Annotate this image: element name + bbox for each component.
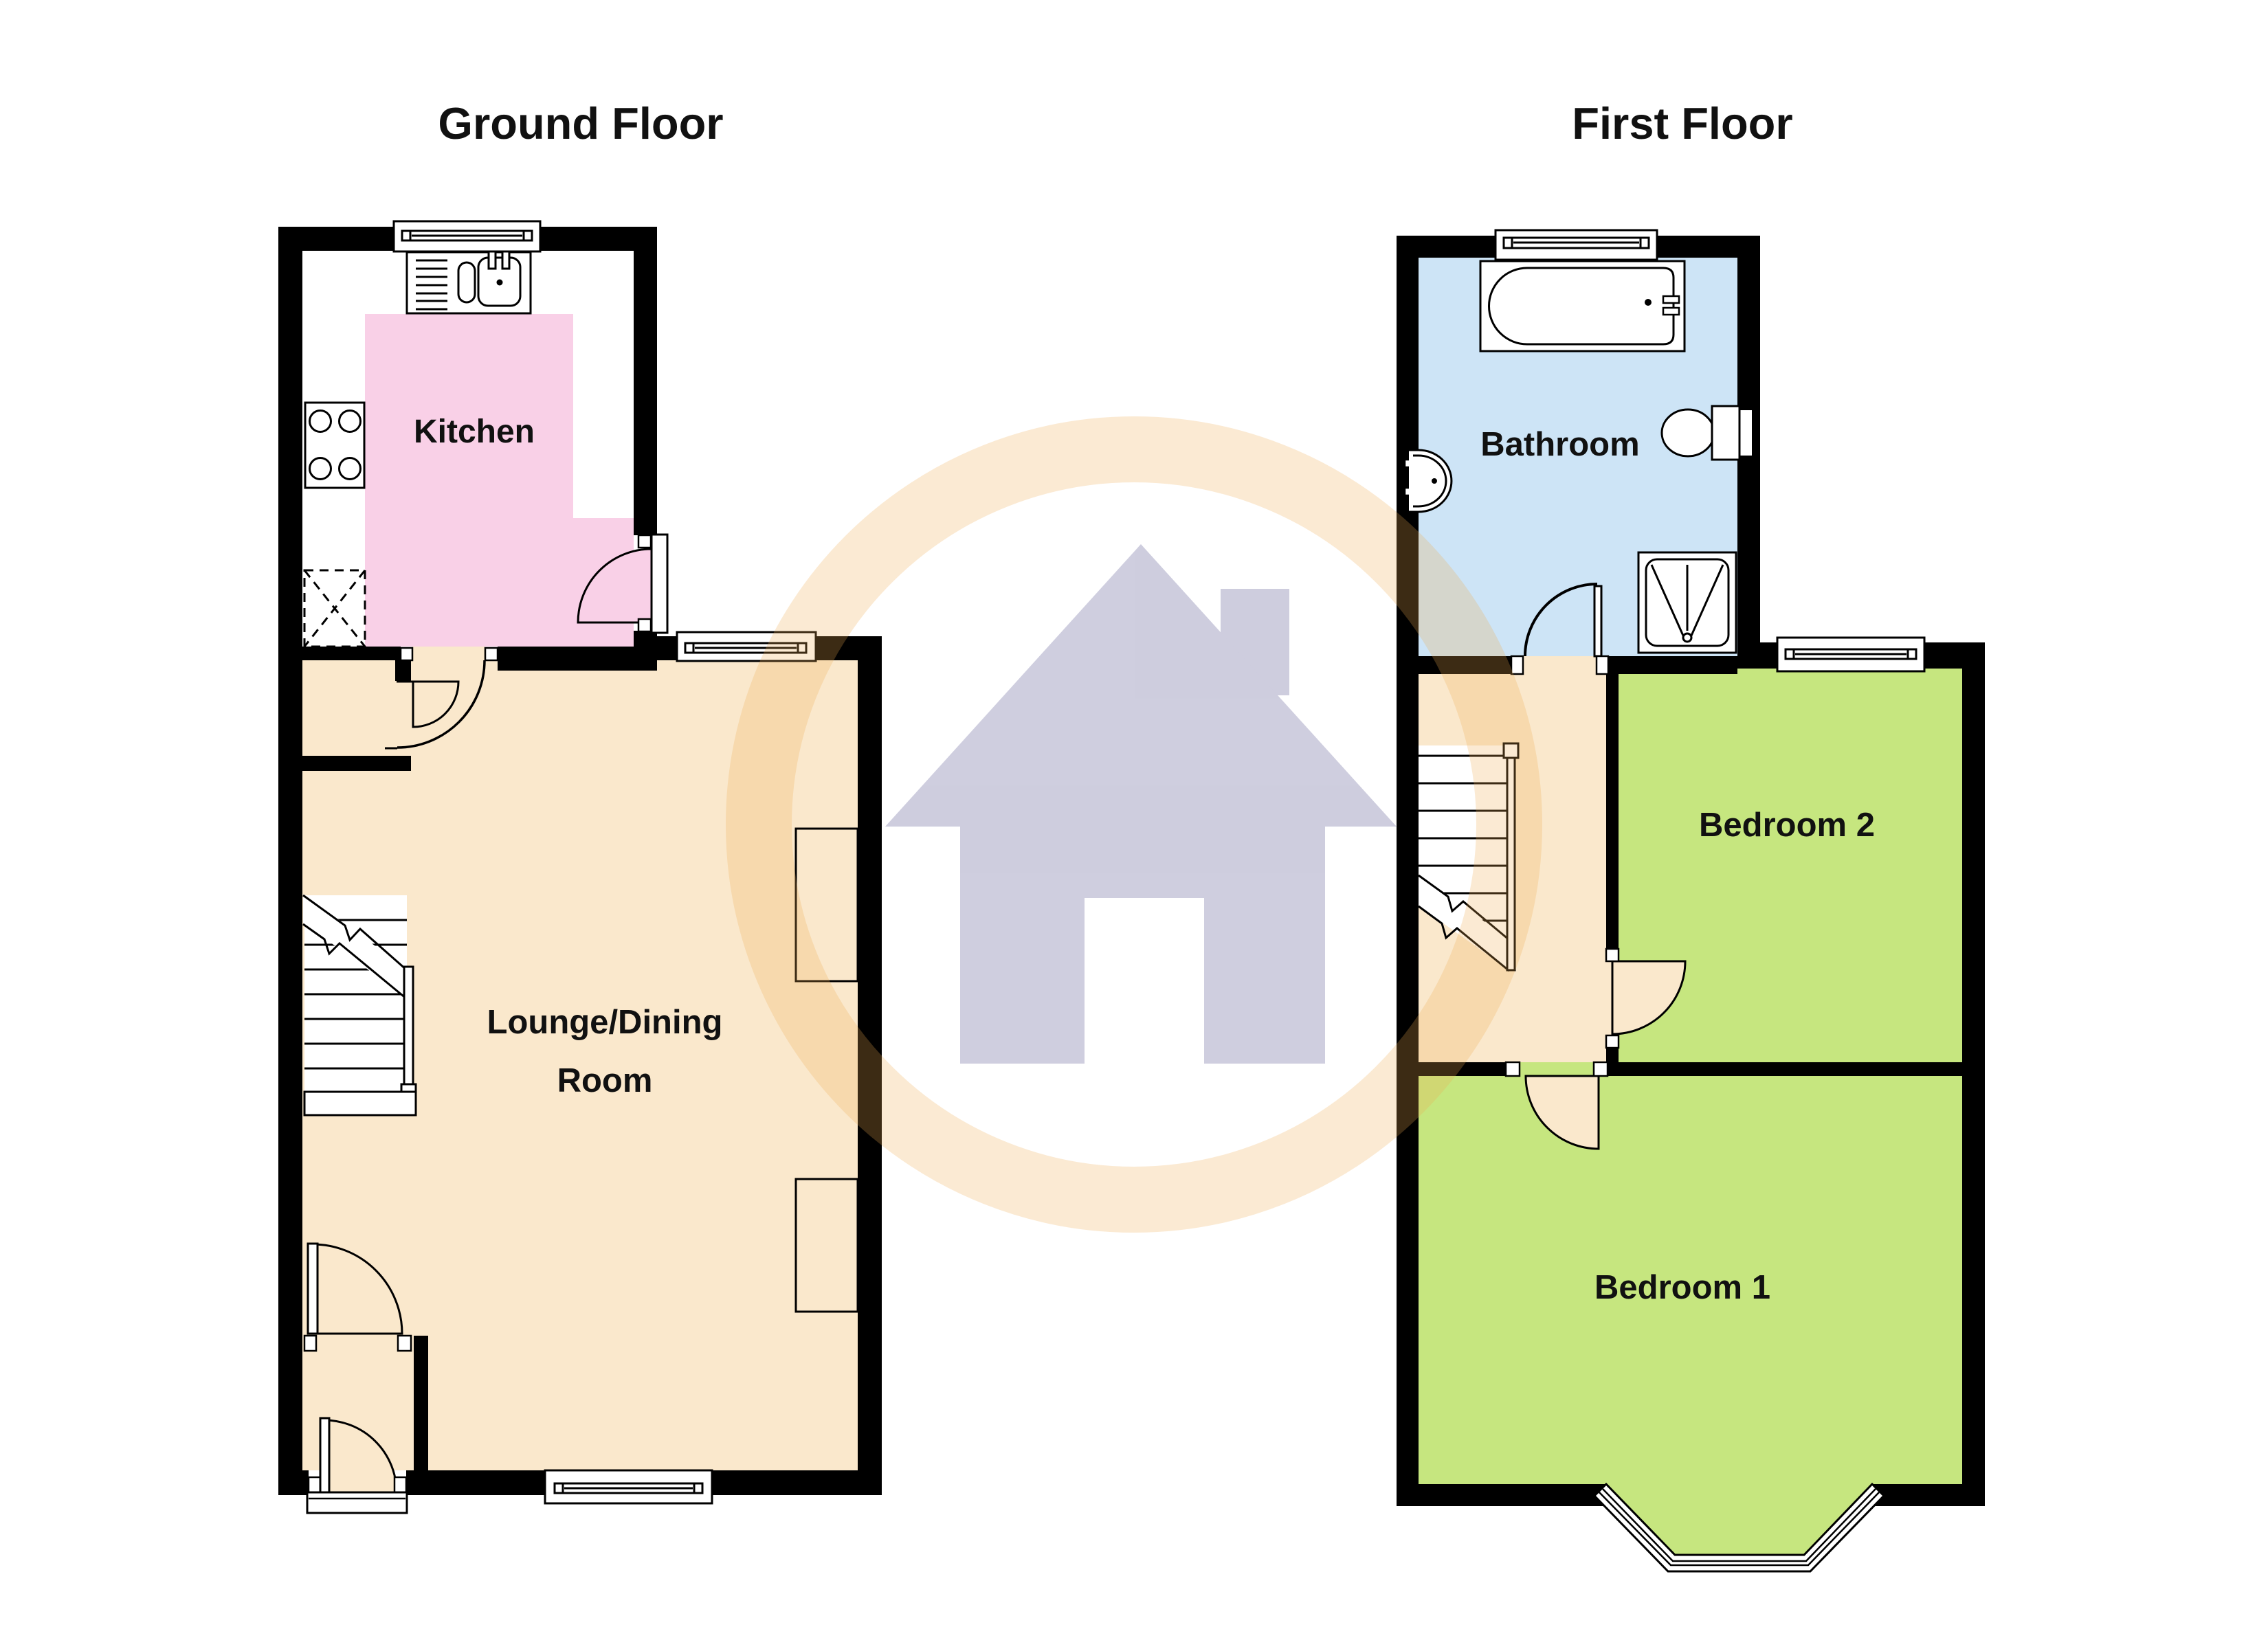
svg-text:First Floor: First Floor (1572, 98, 1792, 148)
svg-text:Bedroom 2: Bedroom 2 (1699, 807, 1875, 844)
svg-text:Lounge/Dining: Lounge/Dining (487, 1004, 723, 1041)
svg-text:Ground Floor: Ground Floor (438, 98, 723, 148)
svg-text:Bedroom 1: Bedroom 1 (1594, 1269, 1770, 1306)
svg-text:Bathroom: Bathroom (1480, 426, 1639, 463)
svg-text:Room: Room (557, 1062, 653, 1099)
svg-text:Kitchen: Kitchen (414, 414, 535, 450)
